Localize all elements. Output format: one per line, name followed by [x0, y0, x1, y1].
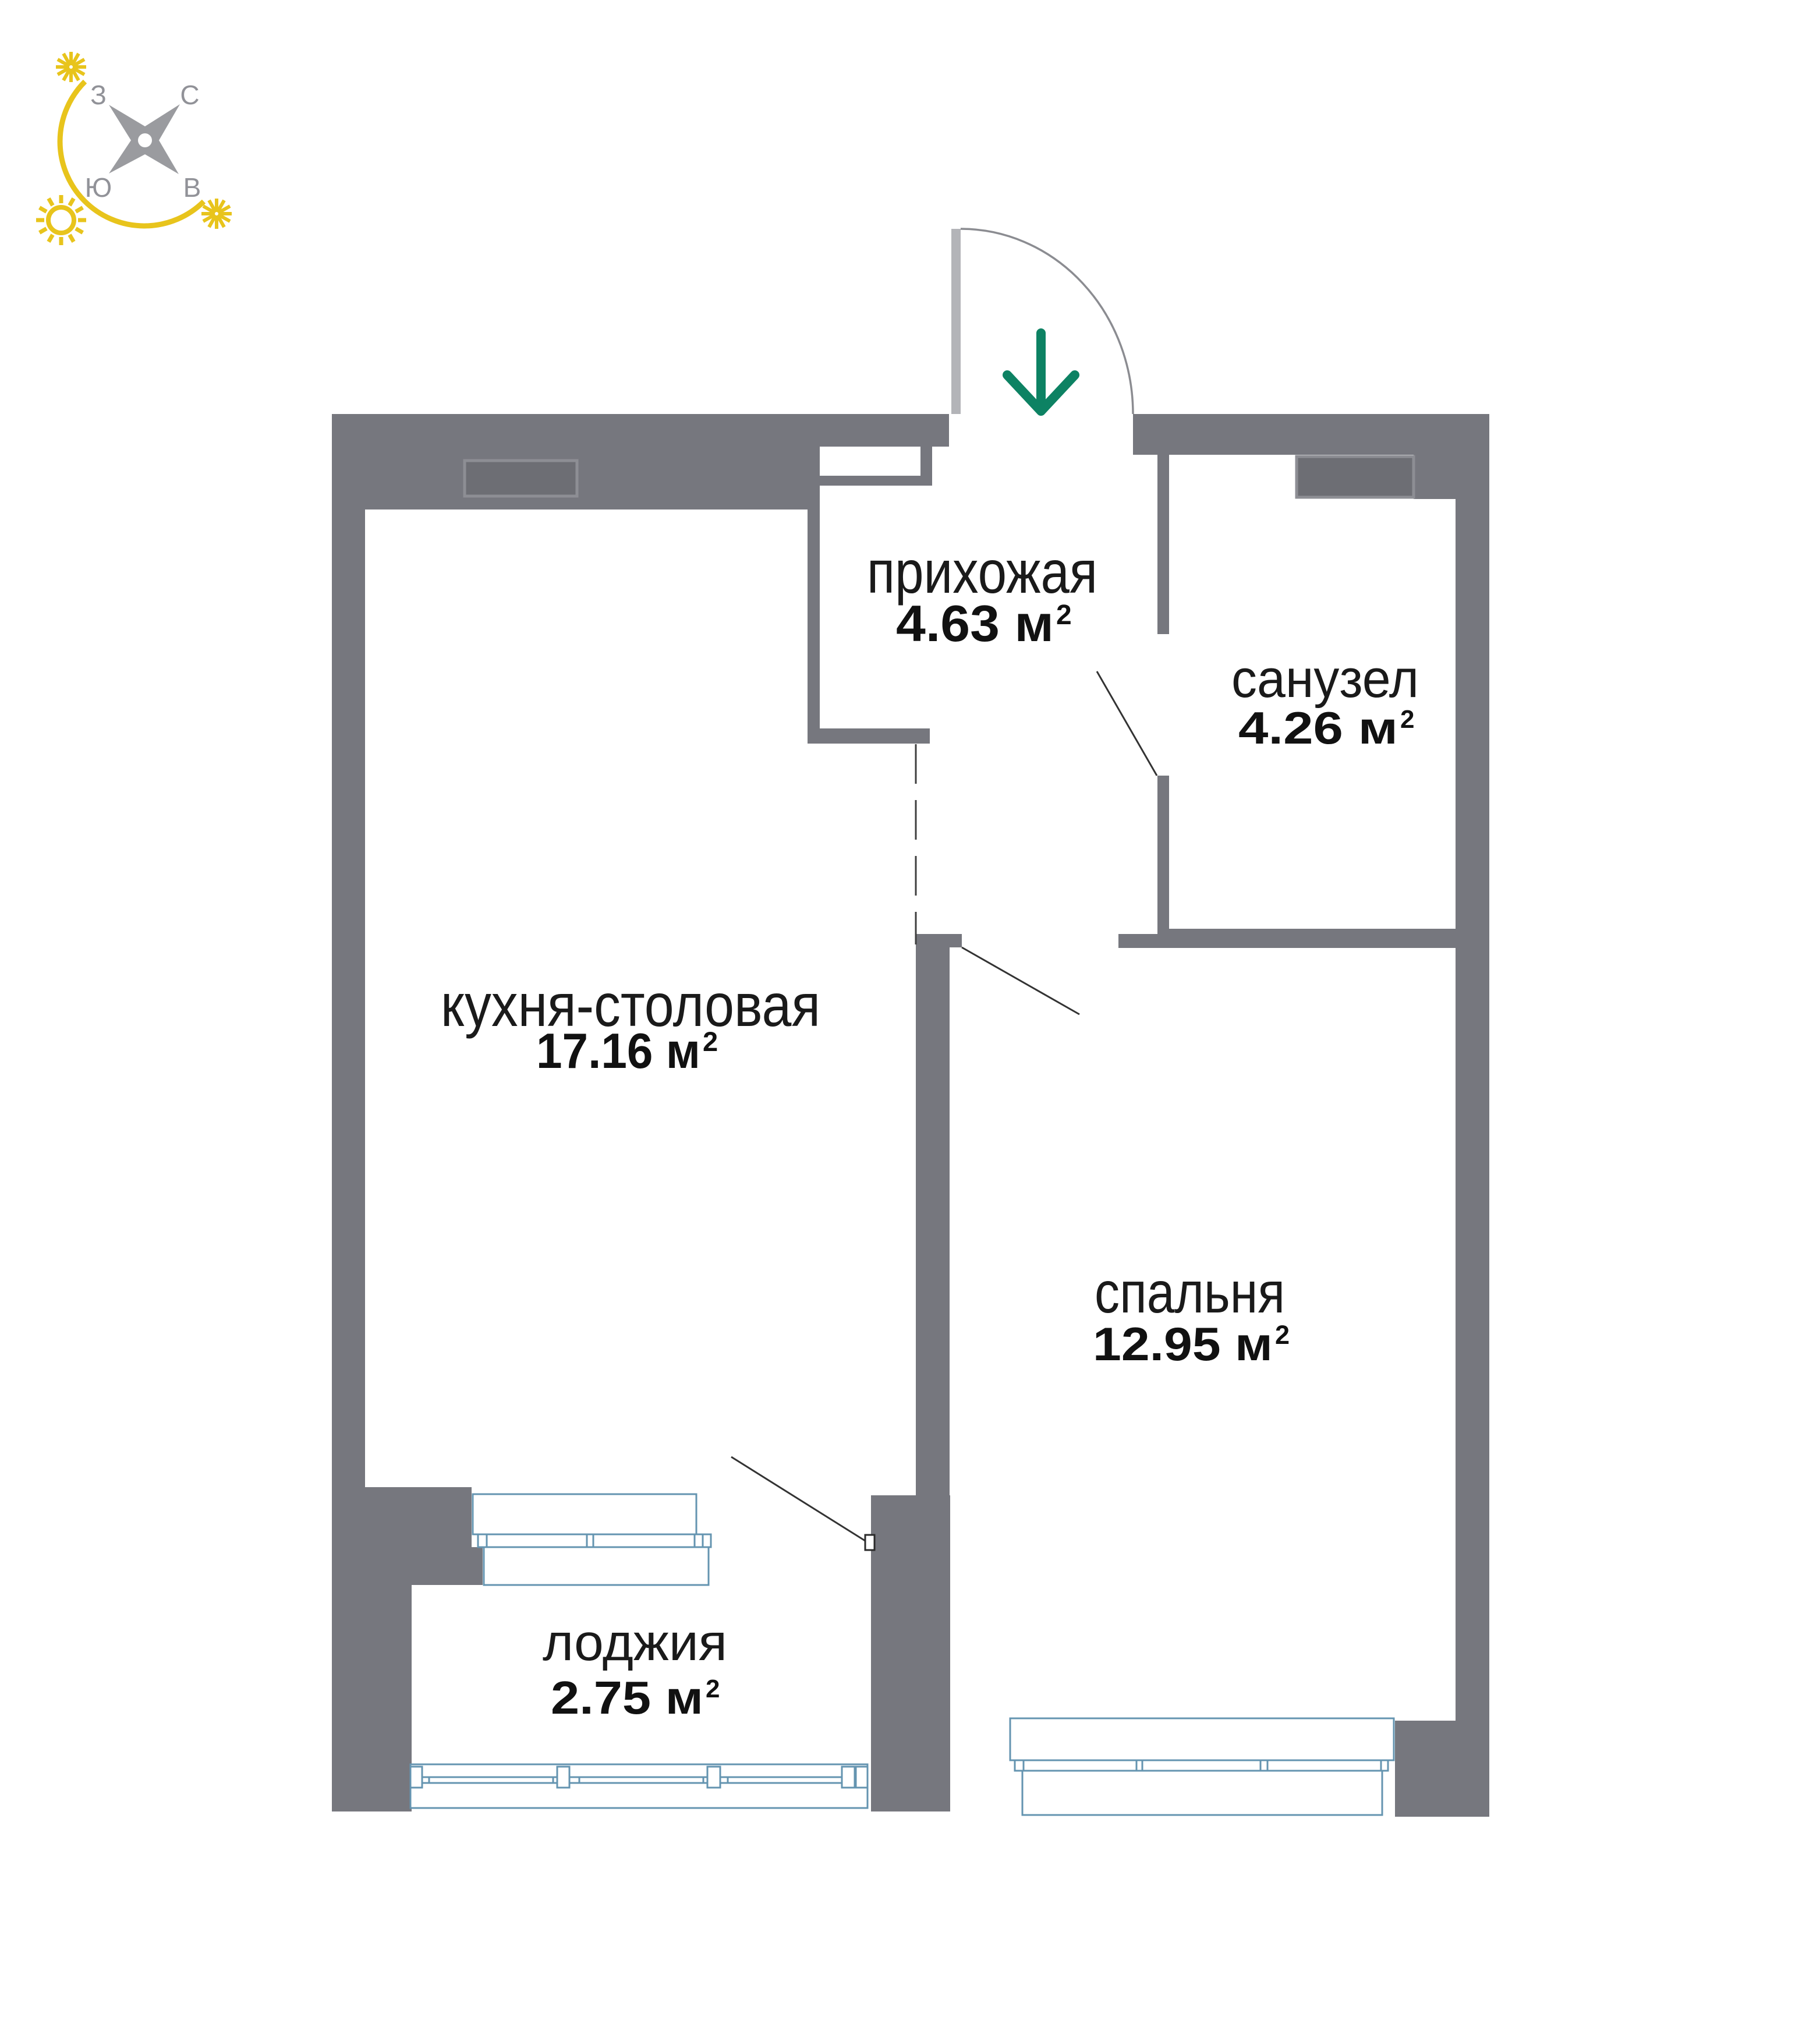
svg-text:З: З: [90, 80, 107, 110]
svg-text:2: 2: [1056, 600, 1072, 631]
svg-text:17.16 м: 17.16 м: [536, 1024, 700, 1079]
svg-text:2.75 м: 2.75 м: [551, 1672, 703, 1724]
svg-text:4.63 м: 4.63 м: [896, 595, 1054, 652]
svg-text:В: В: [183, 172, 201, 203]
svg-text:2: 2: [706, 1675, 720, 1703]
svg-text:Ю: Ю: [85, 172, 112, 203]
svg-text:спальня: спальня: [1095, 1260, 1285, 1325]
svg-text:2: 2: [1400, 705, 1414, 734]
svg-text:санузел: санузел: [1231, 649, 1419, 709]
svg-text:12.95 м: 12.95 м: [1093, 1318, 1273, 1371]
svg-text:С: С: [180, 80, 199, 110]
svg-text:2: 2: [1275, 1320, 1290, 1350]
svg-text:2: 2: [703, 1026, 718, 1057]
svg-text:4.26 м: 4.26 м: [1238, 702, 1398, 753]
svg-text:лоджия: лоджия: [543, 1613, 727, 1671]
